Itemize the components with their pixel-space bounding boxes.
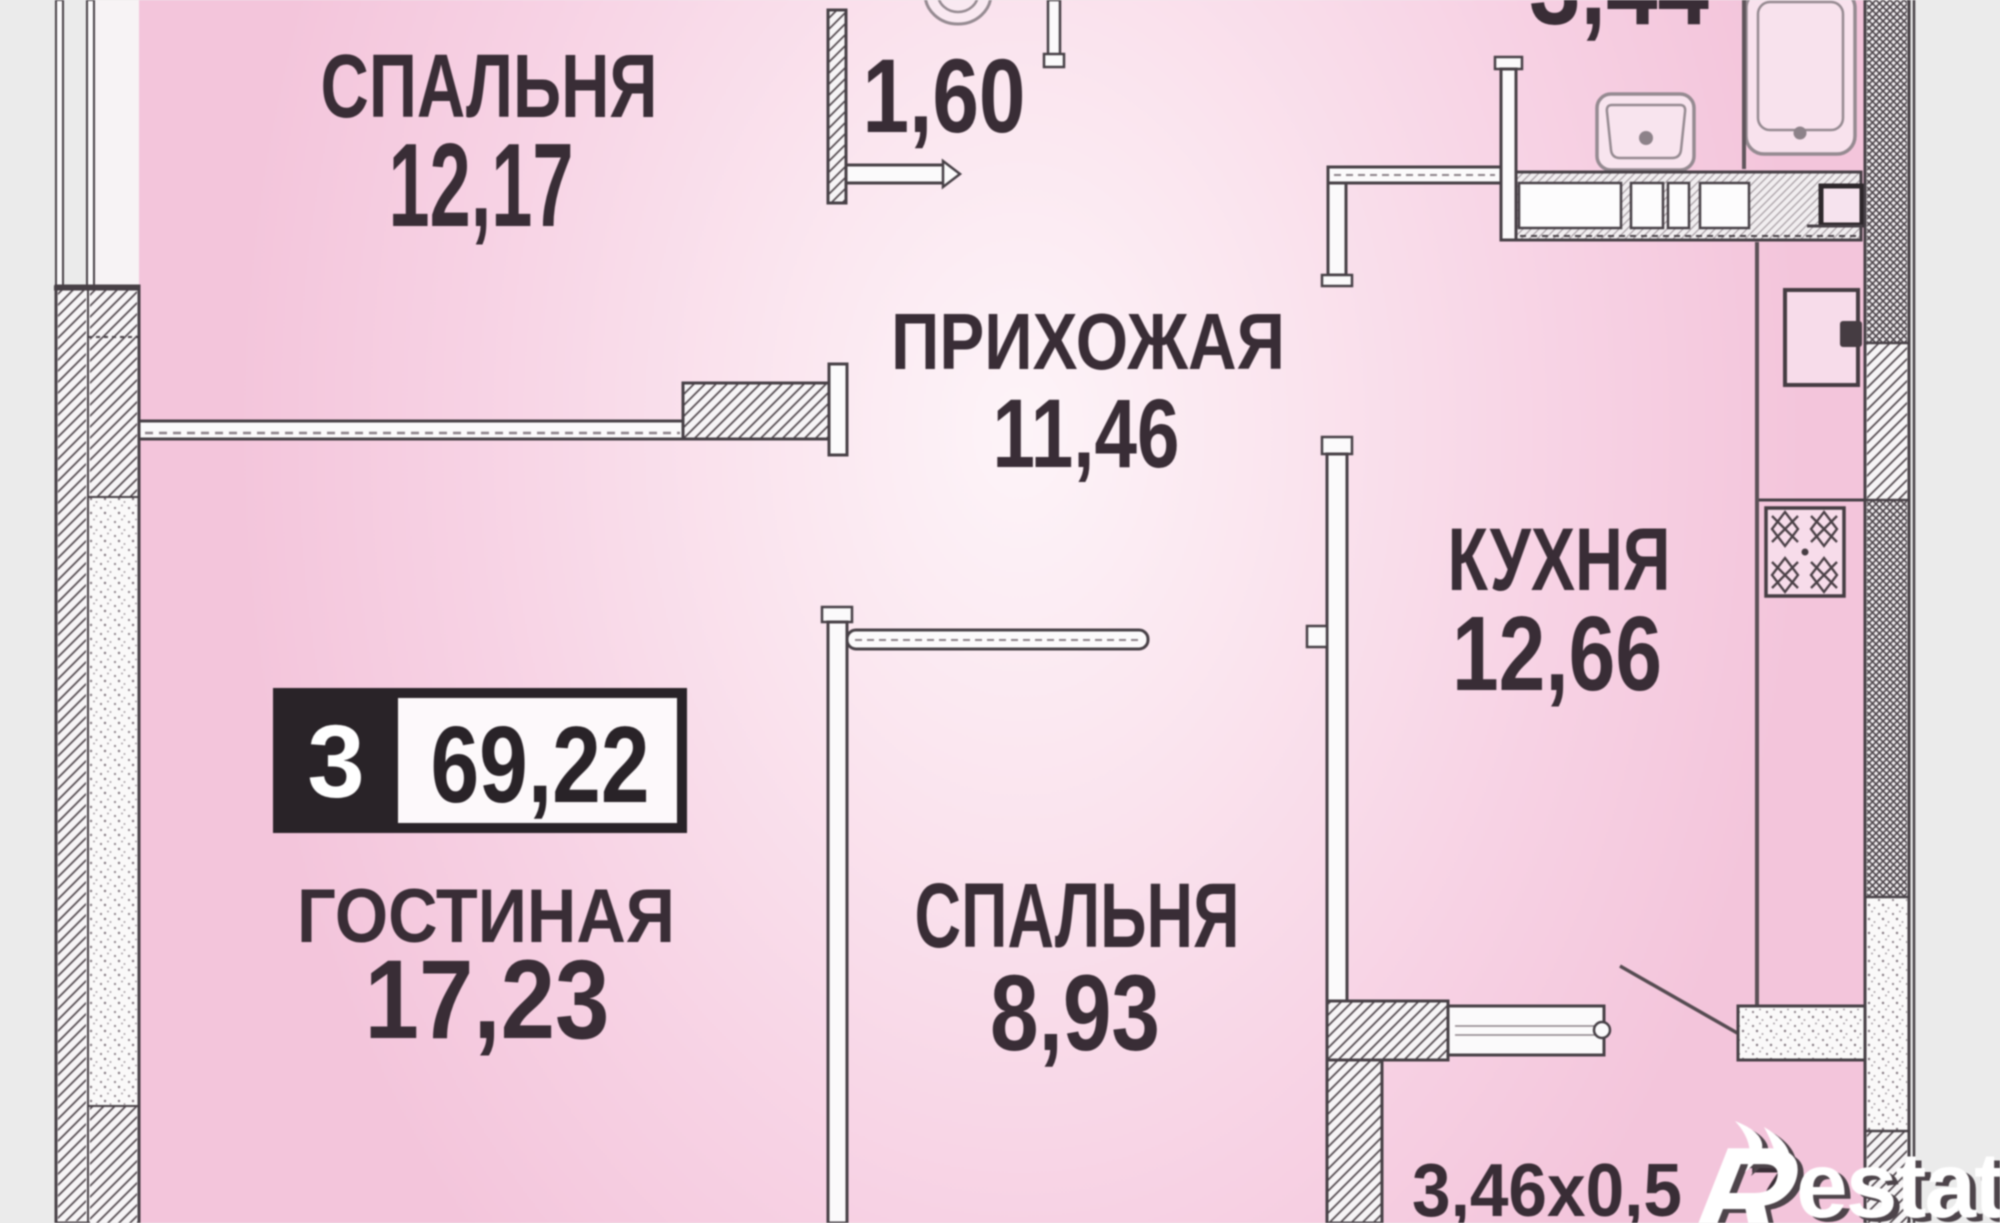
svg-text:12,17: 12,17 <box>389 119 574 252</box>
svg-text:11,46: 11,46 <box>993 379 1180 488</box>
svg-text:ПРИХОЖАЯ: ПРИХОЖАЯ <box>891 297 1285 386</box>
svg-text:КУХНЯ: КУХНЯ <box>1448 509 1671 609</box>
svg-text:69,22: 69,22 <box>431 704 650 826</box>
svg-text:17,23: 17,23 <box>365 937 610 1062</box>
svg-text:8,93: 8,93 <box>990 952 1160 1073</box>
svg-text:1,60: 1,60 <box>863 38 1026 155</box>
svg-text:3: 3 <box>307 704 364 819</box>
svg-text:3,44: 3,44 <box>1529 0 1709 48</box>
svg-text:12,66: 12,66 <box>1452 595 1662 713</box>
svg-text:3,46х0,5: 3,46х0,5 <box>1412 1148 1682 1223</box>
svg-text:estate: estate <box>1796 1133 2000 1223</box>
